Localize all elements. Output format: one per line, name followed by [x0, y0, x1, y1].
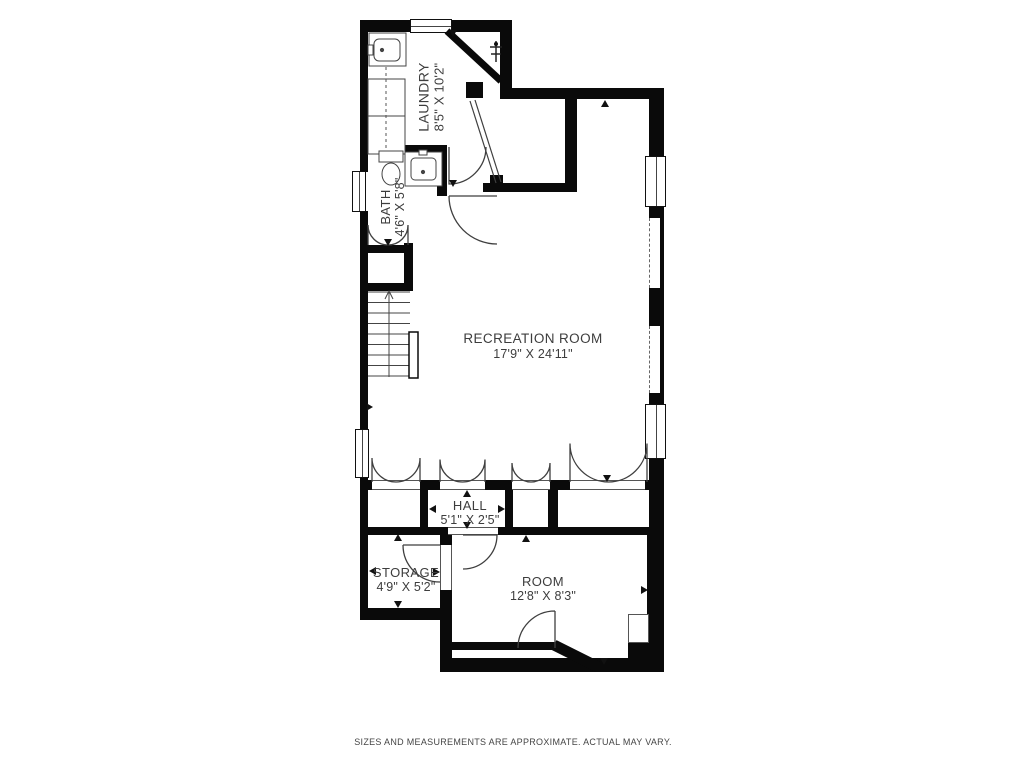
room-dimensions: 4'6" X 5'8": [393, 178, 408, 237]
room-name: BATH: [378, 178, 393, 237]
room-label-hall: HALL 5'1" X 2'5": [441, 498, 500, 528]
room-name: STORAGE: [373, 565, 439, 580]
staircase: [368, 291, 418, 377]
window: [352, 171, 366, 212]
wall: [649, 206, 664, 218]
room-label-recreation-room: RECREATION ROOM 17'9" X 24'11": [463, 331, 602, 361]
room-name: RECREATION ROOM: [463, 331, 602, 347]
wall: [498, 527, 664, 535]
door-arc: [449, 147, 486, 184]
wall: [550, 480, 570, 490]
room-label-room: ROOM 12'8" X 8'3": [510, 574, 576, 604]
wall: [649, 288, 664, 326]
washer-icon: [368, 79, 405, 116]
wall: [360, 477, 368, 620]
wall: [452, 642, 555, 650]
wall: [565, 99, 577, 192]
wall: [437, 150, 447, 196]
room-name: HALL: [441, 498, 500, 513]
room-label-storage: STORAGE 4'9" X 5'2": [373, 565, 439, 595]
wall: [360, 480, 372, 490]
wall: [360, 283, 413, 291]
double-door-arc: [570, 444, 609, 483]
room-label-bath: BATH 4'6" X 5'8": [378, 178, 408, 237]
doorway-opening: [372, 480, 420, 490]
doorway-opening: [440, 480, 485, 490]
wall: [420, 480, 440, 490]
window: [645, 156, 666, 207]
room-dimensions: 5'1" X 2'5": [441, 513, 500, 528]
floor-plan-page: LAUNDRY 8'5" X 10'2" BATH 4'6" X 5'8" RE…: [0, 0, 1024, 768]
disclaimer-text: SIZES AND MEASUREMENTS ARE APPROXIMATE. …: [354, 737, 672, 747]
door-jamb: [490, 175, 503, 190]
room-dimensions: 12'8" X 8'3": [510, 589, 576, 604]
wall: [360, 608, 452, 620]
wall: [628, 643, 664, 672]
stair-up-arrow-icon: [385, 291, 393, 299]
room-dimensions: 4'9" X 5'2": [373, 580, 439, 595]
double-door-arc: [440, 460, 463, 483]
wall: [645, 480, 664, 490]
door-arc: [463, 535, 497, 569]
window: [410, 19, 452, 33]
doorway-opening: [448, 527, 498, 535]
doorway-opening: [440, 545, 452, 590]
room-label-laundry: LAUNDRY 8'5" X 10'2": [415, 62, 446, 131]
double-door-arc: [372, 458, 396, 482]
wall: [500, 20, 512, 95]
wall: [485, 480, 512, 490]
plan-linework: [0, 0, 1024, 768]
wall: [500, 88, 664, 99]
room-dimensions: 17'9" X 24'11": [463, 347, 602, 362]
room-name: LAUNDRY: [415, 62, 431, 131]
room-dimensions: 8'5" X 10'2": [432, 62, 447, 131]
wall: [440, 535, 452, 545]
double-door-arc: [463, 460, 486, 483]
window: [355, 429, 369, 478]
room-name: ROOM: [510, 574, 576, 589]
open-door-leaf: [470, 100, 501, 183]
wall: [466, 82, 483, 98]
dashed-wall-opening: [649, 218, 664, 288]
doorway-opening: [512, 480, 550, 490]
wall: [360, 527, 448, 535]
double-door-arc: [609, 444, 648, 483]
window: [645, 404, 666, 459]
stair-railing: [409, 332, 418, 378]
wall: [360, 211, 368, 430]
dashed-wall-opening: [649, 326, 664, 393]
doorway-opening: [570, 480, 645, 490]
door-arc: [449, 196, 497, 244]
double-door-arc: [396, 458, 420, 482]
wall: [649, 457, 664, 535]
wall: [360, 145, 447, 153]
laundry-sink-icon: [368, 33, 406, 66]
diagonal-wall: [447, 31, 501, 81]
wall: [649, 99, 664, 158]
wall-niche: [628, 614, 649, 643]
